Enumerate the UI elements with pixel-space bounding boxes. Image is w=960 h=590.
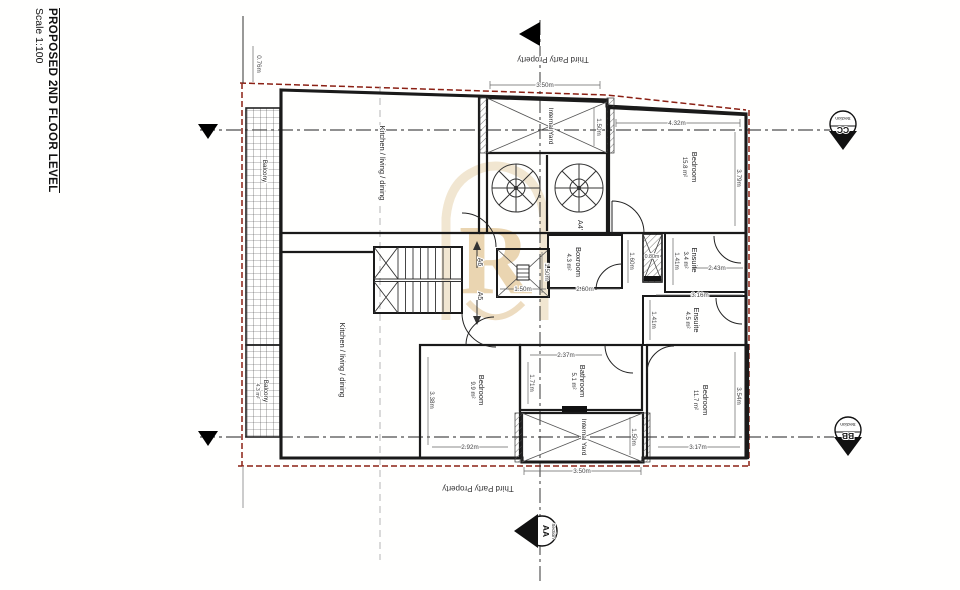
balcony-upper: Balcony	[246, 108, 280, 345]
boundary-label-top: Third Party Property	[517, 55, 589, 64]
marker-sub-label: Section	[835, 116, 851, 121]
room-area: 4.5 m²	[684, 311, 690, 328]
dim-237: 2.37m	[557, 352, 575, 359]
stair-ref-a6: A6	[476, 258, 483, 267]
room-area: 15.8 m²	[681, 157, 687, 177]
boundary-label-bottom: Third Party Property	[442, 484, 514, 493]
dim-432: 4.32m	[668, 120, 686, 127]
section-arrow-aa	[519, 22, 540, 46]
dim-141-ensuite-upper: 1.41m	[673, 252, 680, 270]
room-label: Ensuite	[692, 307, 701, 332]
section-arrow-cc	[198, 124, 218, 139]
marker-label: CC	[837, 125, 849, 135]
dim-350-top: 3.50m	[536, 82, 554, 89]
stair-ref-a5: A5	[476, 292, 483, 301]
dim-316: 3.16m	[691, 292, 709, 299]
room-kitchen-lower: Kitchen / living / dining	[281, 252, 420, 458]
room-label: Bedroom	[690, 152, 699, 182]
dim-150-yard-bottom: 1.50m	[630, 428, 637, 446]
balcony-lower-label: Balcony	[262, 380, 269, 403]
dim-354: 3.54m	[735, 387, 742, 405]
section-marker-cc: Section CC	[829, 111, 857, 150]
room-label: Internal Yard	[547, 108, 554, 145]
section-marker-aa: AA Section	[514, 514, 557, 548]
section-arrow-bb	[198, 431, 218, 446]
floor-plan-drawing: R Third Party Property Third Party Prope…	[0, 0, 960, 590]
floor-plan-canvas: PROPOSED 2ND FLOOR LEVEL Scale 1:100 R	[0, 0, 960, 590]
room-boxroom: Boxroom 4.3 m²	[548, 235, 622, 288]
dim-141-ensuite-lower: 1.41m	[650, 311, 657, 329]
balcony-lower-area: 4.3 m²	[254, 383, 260, 398]
dim-292: 2.92m	[461, 444, 479, 451]
dim-150-lift-w: 1.50m	[514, 286, 532, 293]
room-label: Ensuite	[690, 247, 699, 272]
section-marker-bb: Section BB	[834, 417, 862, 456]
marker-sub-label: Section	[840, 422, 856, 427]
balcony-upper-label: Balcony	[261, 160, 268, 183]
dim-150-yard-top: 1.50m	[595, 118, 602, 136]
dim-243: 2.43m	[708, 265, 726, 272]
room-label: Kitchen / living / dining	[378, 126, 387, 201]
room-ensuite-lower: Ensuite 4.5 m²	[643, 296, 746, 345]
stair-ref-a4: A4'	[576, 220, 583, 230]
room-area: 9.9 m²	[469, 381, 475, 398]
dim-150-lift-h: 1.50m	[543, 263, 550, 281]
dim-080: 0.80m	[645, 254, 660, 260]
dim-076: 0.76m	[255, 55, 262, 73]
room-label: Bathroom	[578, 365, 587, 398]
room-area: 5.1 m²	[570, 372, 576, 389]
dim-260: 2.60m	[576, 286, 594, 293]
marker-label: BB	[842, 431, 854, 441]
dim-379: 3.79m	[735, 169, 742, 187]
room-label: Internal Yard	[580, 419, 587, 456]
room-area: 4.3 m²	[565, 253, 571, 270]
watermark-letter: R	[459, 204, 533, 315]
room-label: Bedroom	[701, 385, 710, 415]
room-area: 3.4 m²	[682, 251, 688, 268]
dim-171: 1.71m	[528, 374, 535, 392]
dim-160: 1.60m	[628, 252, 635, 270]
room-area: 11.7 m²	[692, 390, 698, 410]
dim-338: 3.38m	[428, 391, 435, 409]
balcony-lower: Balcony 4.3 m²	[246, 345, 280, 437]
room-bedroom-bottom-right: Bedroom 11.7 m²	[647, 345, 748, 458]
marker-label: AA	[541, 525, 551, 537]
dim-317: 3.17m	[689, 444, 707, 451]
room-label: Kitchen / living / dining	[338, 323, 347, 398]
room-label: Boxroom	[574, 247, 583, 277]
room-label: Bedroom	[477, 375, 486, 405]
dim-350-bottom: 3.50m	[573, 468, 591, 475]
marker-sub-label: Section	[551, 523, 556, 539]
